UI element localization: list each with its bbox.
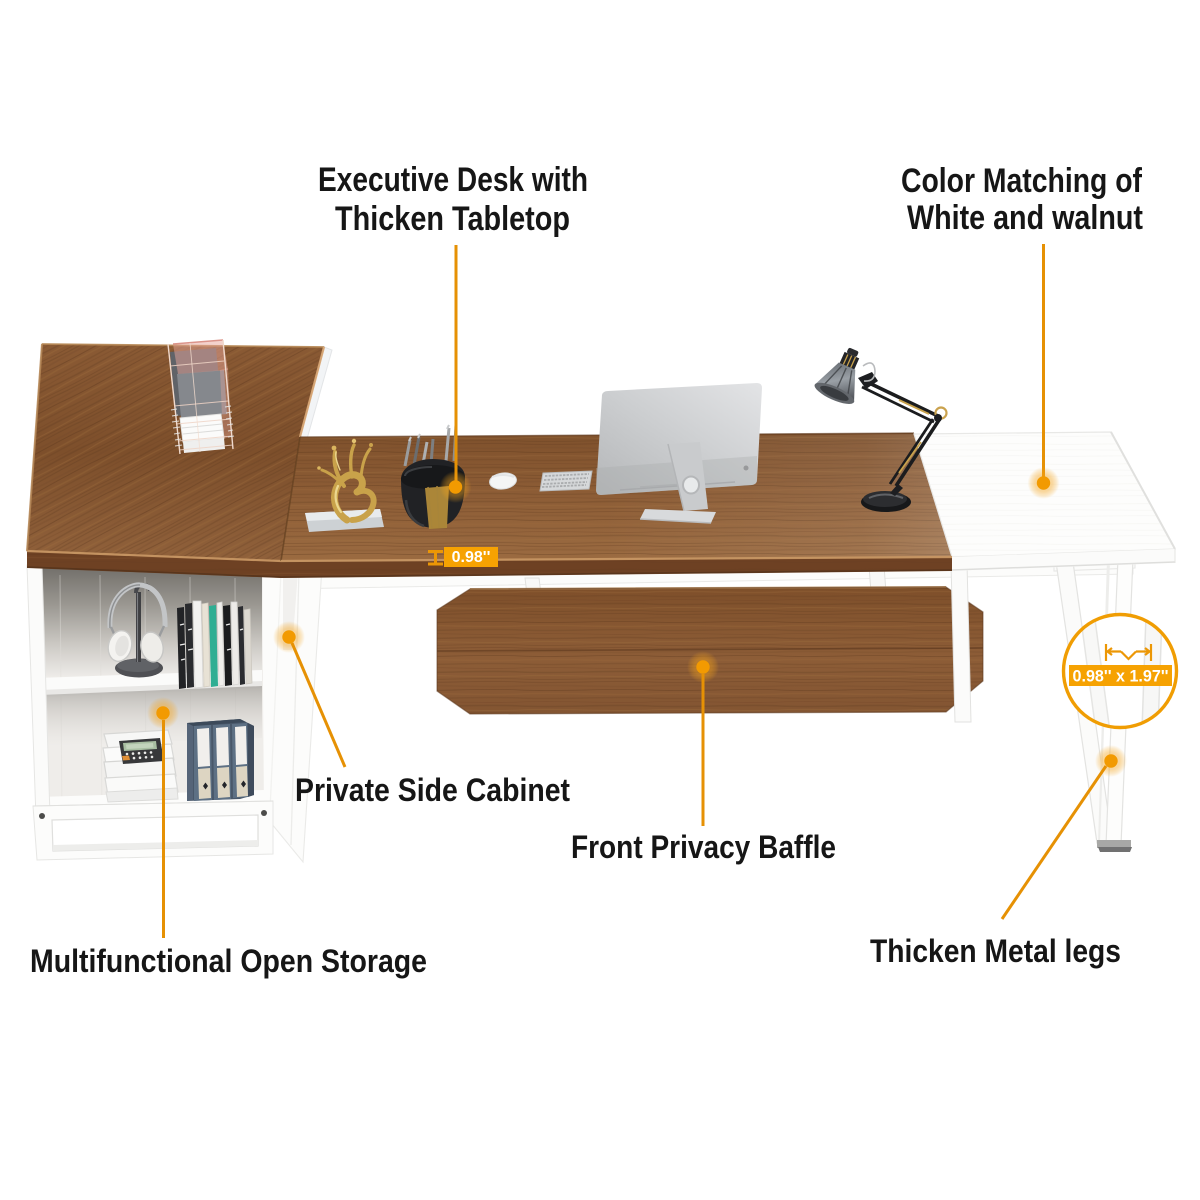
svg-text:Private Side Cabinet: Private Side Cabinet <box>295 772 570 808</box>
svg-text:White and walnut: White and walnut <box>907 199 1143 237</box>
svg-text:Executive Desk with: Executive Desk with <box>318 161 588 199</box>
svg-text:Thicken Metal legs: Thicken Metal legs <box>870 933 1121 969</box>
svg-text:Front Privacy Baffle: Front Privacy Baffle <box>571 829 836 865</box>
svg-text:Color Matching of: Color Matching of <box>901 162 1143 200</box>
svg-text:0.98'': 0.98'' <box>452 549 491 566</box>
svg-text:Thicken Tabletop: Thicken Tabletop <box>335 200 570 238</box>
svg-text:Multifunctional Open Storage: Multifunctional Open Storage <box>30 943 427 979</box>
svg-text:0.98'' x 1.97'': 0.98'' x 1.97'' <box>1073 668 1169 686</box>
